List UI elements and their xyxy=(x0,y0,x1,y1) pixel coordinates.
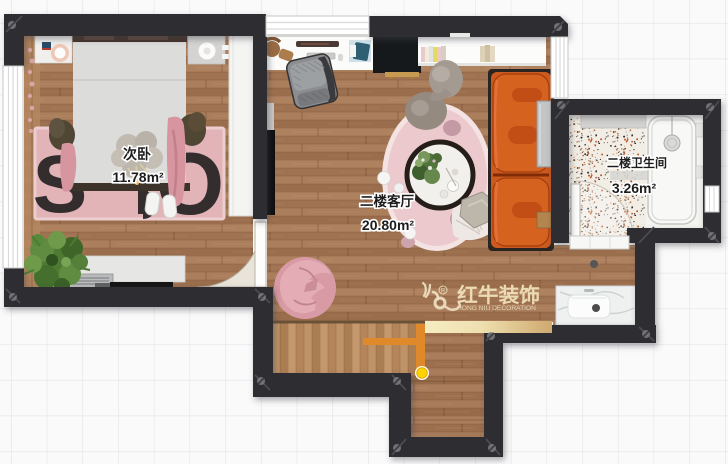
svg-text:二楼卫生间: 二楼卫生间 xyxy=(607,155,667,170)
svg-text:红牛装饰: 红牛装饰 xyxy=(457,283,540,307)
svg-text:二楼客厅: 二楼客厅 xyxy=(360,193,414,209)
svg-text:HONG NIU DECORATION: HONG NIU DECORATION xyxy=(457,306,536,312)
svg-text:11.78m²: 11.78m² xyxy=(112,169,164,185)
svg-text:20.80m²: 20.80m² xyxy=(362,217,414,233)
svg-text:R: R xyxy=(441,289,446,295)
svg-text:3.26m²: 3.26m² xyxy=(612,180,657,196)
svg-text:次卧: 次卧 xyxy=(123,146,151,162)
